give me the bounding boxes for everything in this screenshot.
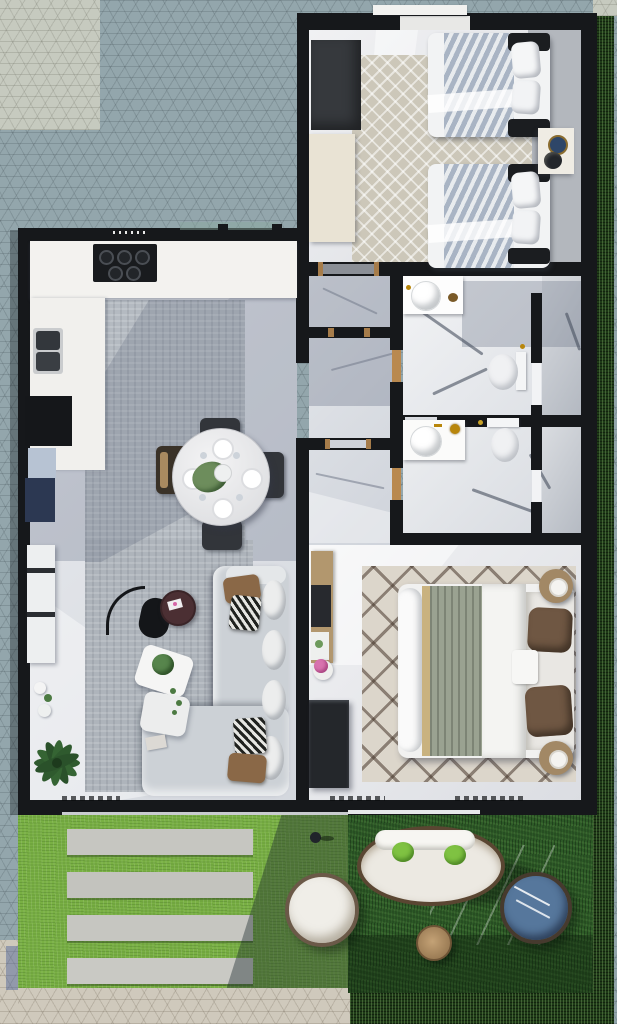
wall-right (581, 13, 597, 815)
floor-vase (38, 704, 51, 717)
shower-2-door (532, 470, 541, 502)
door-track-marks (455, 796, 525, 801)
wall-shower-1-stub (531, 405, 542, 415)
plate (212, 438, 234, 460)
hedge-bottom (350, 993, 595, 1024)
glass (233, 452, 240, 459)
wardrobe (311, 40, 361, 130)
vanity-1-basin (411, 281, 441, 311)
vanity-1-accessory (448, 293, 458, 302)
burner (99, 250, 114, 265)
toilet-2-flush-gold (478, 420, 483, 425)
twin-bed-top-pillow-2 (511, 79, 541, 115)
desk-paper-plant-dot (315, 640, 323, 648)
kitchen-counter-top (30, 241, 297, 298)
toilet-2-bowl (491, 428, 519, 462)
media-bench (27, 545, 55, 663)
master-pillow-brown-1 (527, 607, 573, 653)
master-bed-white-tray (512, 650, 538, 684)
wall-shower-1 (531, 293, 542, 363)
plant-vine-dot (170, 688, 176, 694)
plate (241, 468, 263, 490)
burner (126, 266, 141, 281)
shower-compartment-1-floor (542, 276, 581, 415)
bottle-shadow (320, 836, 334, 841)
twin-bedroom-door-gap (322, 264, 374, 274)
wall-shower-2 (531, 427, 542, 470)
vanity-1-faucet-gold (406, 285, 411, 290)
toilet-1-flush-gold (520, 344, 525, 349)
twin-bed-bottom-pillow-1 (510, 171, 541, 209)
burner (135, 250, 150, 265)
kitchen-sink-basin-1 (36, 331, 60, 350)
navy-cabinet (25, 478, 55, 522)
media-bench-bar (27, 568, 55, 573)
door-frame-tick (374, 262, 379, 276)
twin-bed-bottom-pillow-2 (511, 209, 541, 245)
master-bed-roll-left (398, 588, 422, 752)
nightstand-succulent (544, 152, 562, 169)
sofa-back-cushion (262, 580, 286, 620)
door-frame-tick (325, 439, 330, 449)
bedroom-window (400, 16, 470, 30)
media-bench-bar (27, 612, 55, 617)
bathroom-1-door (392, 350, 401, 382)
wood-stool (416, 925, 452, 961)
glass (199, 494, 206, 501)
hall-door-gap (330, 440, 366, 448)
glass (200, 452, 207, 459)
lawn-paver-3 (67, 915, 253, 941)
twin-bed-bottom-throw-dark-2 (508, 248, 550, 264)
sofa-pillow-brown-2 (227, 752, 267, 783)
nightstand-lamp-bottom (549, 750, 568, 769)
refrigerator (25, 396, 72, 446)
sofa-pillow-striped-2 (233, 717, 267, 755)
door-frame-tick (328, 328, 334, 337)
lawn-paver-2 (67, 872, 253, 898)
master-bed-tan-stripe (422, 586, 430, 756)
stone-patio-light-square (0, 0, 100, 130)
patio-door-threshold-right (348, 810, 480, 814)
side-table-plant (152, 654, 174, 675)
wall-upper-left (297, 13, 309, 238)
daybed-green-pillow-2 (444, 845, 466, 865)
toilet-1-bowl (488, 354, 518, 390)
bathroom-2-door (392, 468, 401, 500)
magazine-pink-dot (173, 602, 177, 606)
door-track-marks (62, 796, 120, 801)
desk-laptop (311, 585, 331, 627)
dining-chair-west-wood (160, 452, 168, 488)
twin-bed-bottom-duvet (444, 164, 514, 268)
door-frame-tick (366, 439, 371, 449)
round-chair-white (285, 873, 359, 947)
toilet-2-tank (487, 418, 519, 427)
wall-living-master (296, 438, 309, 800)
floor-vase (34, 682, 46, 694)
kitchen-window-glass (180, 222, 278, 230)
hallway-floor (309, 262, 396, 545)
plate (212, 498, 234, 520)
cooktop-vent-dots (113, 231, 147, 234)
shower-1-door (532, 363, 541, 405)
vanity-2-faucet-gold (434, 424, 442, 427)
door-frame-tick (318, 262, 323, 276)
round-chair-blue (500, 872, 572, 944)
twin-bed-top-pillow-1 (510, 41, 541, 79)
wall-bath-left (390, 276, 403, 350)
plant-vine-dot (176, 700, 182, 706)
lawn-paver-4 (67, 958, 253, 984)
palm-center (52, 758, 62, 768)
door-frame-tick (364, 328, 370, 337)
sofa-back-cushion (262, 630, 286, 670)
plant-vine-dot (172, 710, 177, 715)
kitchen-sink-basin-2 (36, 352, 60, 371)
pink-flowers (314, 659, 328, 673)
master-pillow-brown-2 (524, 684, 573, 737)
patio-door-threshold-left (62, 812, 348, 815)
kitchen-window-post-2 (272, 224, 282, 241)
glass (236, 494, 243, 501)
master-bed-blanket (430, 586, 482, 756)
door-track-marks (330, 796, 385, 801)
kitchen-side-window (28, 448, 56, 478)
stone-path-left-bottom (0, 940, 18, 1024)
master-dresser (309, 700, 349, 788)
nightstand-lamp-top (549, 578, 568, 597)
vanity-2-basin (410, 426, 442, 457)
centerpiece-bowl (214, 464, 232, 482)
burner (117, 250, 132, 265)
wall-master-top (396, 533, 581, 545)
burner (108, 266, 123, 281)
wall-hall-left-upper (296, 238, 309, 363)
bedroom-window-sill (373, 5, 467, 15)
side-table-2 (139, 690, 191, 737)
sofa-back-cushion (262, 680, 286, 720)
lawn-paver-1 (67, 829, 253, 855)
wall-hall-cross-1 (309, 327, 396, 338)
kitchen-window-post-1 (218, 224, 228, 241)
floor-plan-render (0, 0, 617, 1024)
twin-bed-top-duvet (444, 33, 514, 137)
daybed-green-pillow-1 (392, 842, 414, 862)
dresser-beige (309, 134, 355, 242)
vase-sprig (44, 694, 52, 702)
sofa-pillow-striped-1 (228, 595, 261, 632)
stone-path-bottom (0, 988, 352, 1024)
vanity-2-gold-jar (450, 424, 460, 434)
